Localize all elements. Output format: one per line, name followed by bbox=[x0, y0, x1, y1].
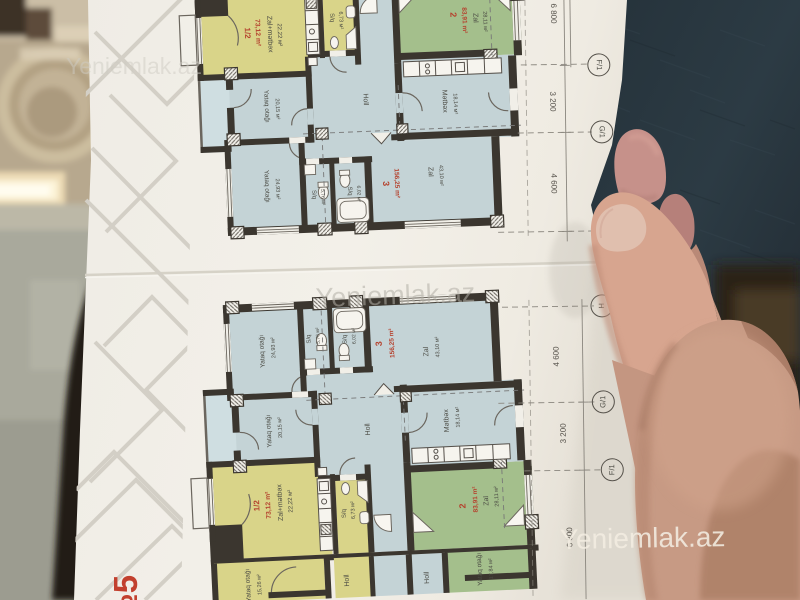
svg-text:22,22 м²: 22,22 м² bbox=[288, 490, 295, 513]
svg-text:Yeniemlak.az: Yeniemlak.az bbox=[560, 521, 726, 555]
svg-text:18,14 м²: 18,14 м² bbox=[455, 406, 462, 427]
svg-text:Holl: Holl bbox=[424, 571, 432, 584]
svg-text:43,10 м²: 43,10 м² bbox=[434, 336, 441, 357]
svg-text:G/1: G/1 bbox=[598, 126, 607, 138]
svg-text:Mətbəx: Mətbəx bbox=[443, 409, 451, 433]
svg-text:156,25 m²: 156,25 m² bbox=[388, 327, 396, 358]
svg-text:Yataq otağı: Yataq otağı bbox=[262, 90, 270, 123]
svg-text:6,73 м²: 6,73 м² bbox=[337, 11, 344, 29]
svg-text:6,02 м²: 6,02 м² bbox=[351, 327, 358, 344]
svg-text:Holl: Holl bbox=[361, 93, 368, 106]
svg-text:2: 2 bbox=[448, 12, 458, 17]
svg-text:S/q: S/q bbox=[310, 190, 316, 199]
svg-text:15,26 м²: 15,26 м² bbox=[256, 574, 263, 595]
svg-text:5,76 м²: 5,76 м² bbox=[315, 327, 322, 344]
svg-text:Zal+mətbəx: Zal+mətbəx bbox=[265, 16, 273, 54]
svg-text:F/1: F/1 bbox=[607, 464, 616, 475]
svg-text:S/q: S/q bbox=[342, 509, 348, 518]
svg-text:Zal: Zal bbox=[423, 346, 430, 356]
svg-text:73,12 m²: 73,12 m² bbox=[253, 19, 261, 47]
svg-text:Holl: Holl bbox=[364, 423, 372, 436]
svg-text:4 600: 4 600 bbox=[549, 173, 558, 194]
svg-text:6 800: 6 800 bbox=[549, 3, 558, 24]
svg-text:3 200: 3 200 bbox=[559, 423, 568, 444]
svg-text:S/q: S/q bbox=[342, 335, 348, 344]
svg-text:Yeniemlak.az: Yeniemlak.az bbox=[315, 277, 476, 313]
svg-text:Yataq otağı: Yataq otağı bbox=[262, 170, 270, 203]
svg-text:3: 3 bbox=[374, 341, 384, 346]
svg-text:Holl: Holl bbox=[344, 574, 352, 587]
svg-text:5,76 м²: 5,76 м² bbox=[319, 189, 326, 206]
svg-text:S/q: S/q bbox=[306, 334, 312, 343]
svg-text:Yeniemlak.az: Yeniemlak.az bbox=[66, 53, 202, 79]
svg-text:1/2: 1/2 bbox=[243, 27, 252, 39]
svg-text:S/q: S/q bbox=[346, 186, 352, 195]
svg-text:S/q: S/q bbox=[328, 13, 334, 22]
svg-text:Zal: Zal bbox=[483, 495, 490, 505]
svg-text:Zal: Zal bbox=[471, 13, 478, 23]
svg-text:28,11 м²: 28,11 м² bbox=[494, 486, 501, 507]
svg-text:F/1: F/1 bbox=[595, 59, 604, 70]
svg-text:24,93 м²: 24,93 м² bbox=[274, 178, 281, 199]
svg-text:4 600: 4 600 bbox=[552, 346, 561, 367]
svg-text:18,14 м²: 18,14 м² bbox=[452, 93, 459, 114]
svg-text:83,91 m²: 83,91 m² bbox=[472, 485, 480, 512]
svg-text:20,15 м²: 20,15 м² bbox=[274, 98, 281, 119]
svg-text:3 200: 3 200 bbox=[548, 91, 557, 112]
svg-text:24,93 м²: 24,93 м² bbox=[270, 337, 277, 358]
svg-text:Zal: Zal bbox=[426, 167, 433, 177]
svg-text:6,73 м²: 6,73 м² bbox=[350, 501, 357, 519]
svg-text:G/1: G/1 bbox=[598, 396, 607, 408]
svg-text:2: 2 bbox=[457, 503, 467, 508]
svg-text:156,25 m²: 156,25 m² bbox=[392, 168, 400, 199]
svg-text:20,15 м²: 20,15 м² bbox=[277, 417, 284, 438]
svg-text:3: 3 bbox=[381, 181, 391, 186]
svg-text:43,10 м²: 43,10 м² bbox=[437, 165, 444, 186]
svg-text:73,12 m²: 73,12 m² bbox=[265, 491, 273, 519]
svg-text:Mətbəx: Mətbəx bbox=[440, 90, 448, 114]
svg-text:22,22 м²: 22,22 м² bbox=[276, 23, 283, 46]
svg-text:28,11 м²: 28,11 м² bbox=[481, 11, 488, 32]
svg-text:№5: №5 bbox=[107, 575, 144, 600]
svg-text:17,84 м²: 17,84 м² bbox=[488, 558, 495, 579]
svg-text:83,91 m²: 83,91 m² bbox=[460, 7, 468, 34]
svg-text:6,02 м²: 6,02 м² bbox=[355, 186, 362, 203]
svg-text:1/2: 1/2 bbox=[252, 499, 262, 511]
